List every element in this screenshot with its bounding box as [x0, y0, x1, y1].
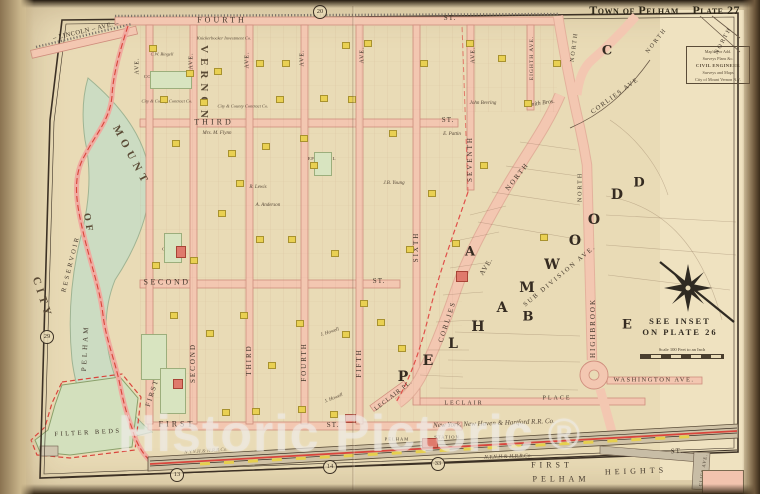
- label-pelham-station: PELHAM: [385, 436, 410, 441]
- map-geometry: [0, 0, 760, 494]
- building-footprint: [228, 150, 236, 157]
- building-footprint: [218, 210, 226, 217]
- building-footprint: [149, 45, 157, 52]
- building-footprint: [200, 99, 208, 106]
- letter-l: L: [448, 337, 458, 353]
- building-footprint: [310, 162, 318, 169]
- building-footprint: [282, 60, 290, 67]
- brick-building-footprint: [173, 379, 183, 389]
- owner-1: Knickerbocker Investment Co.: [197, 35, 252, 40]
- map-title-plate: Plate 27: [692, 3, 740, 17]
- building-footprint: [428, 190, 436, 197]
- surveyor-line: Surveys Plans &c.: [687, 56, 749, 63]
- building-footprint: [406, 246, 414, 253]
- building-footprint: [186, 70, 194, 77]
- label-highbrook: HIGHBROOK: [590, 298, 598, 358]
- label-ave-3: AVE.: [245, 51, 252, 68]
- building-footprint: [348, 96, 356, 103]
- building-footprint: [377, 319, 385, 326]
- building-footprint: [553, 60, 561, 67]
- label-second-st-suffix: ST.: [373, 278, 385, 286]
- building-footprint: [296, 320, 304, 327]
- building-footprint: [214, 68, 222, 75]
- owner-9: R. Lewis: [249, 185, 266, 191]
- inset-note: SEE INSET ON PLATE 26: [640, 316, 720, 337]
- label-highbrook-north: NORTH: [578, 172, 585, 202]
- label-third-st-suffix: ST.: [442, 117, 454, 125]
- label-st-bottomright: ST.: [671, 448, 684, 456]
- brick-building-footprint: [422, 438, 438, 448]
- label-first-st: FIRST: [159, 421, 196, 430]
- section-a: A: [465, 246, 475, 261]
- building-footprint: [342, 42, 350, 49]
- building-footprint: [276, 96, 284, 103]
- letter-o2: O: [588, 213, 600, 229]
- building-footprint: [236, 180, 244, 187]
- building-footprint: [256, 60, 264, 67]
- label-second-ave: SECOND: [190, 343, 198, 383]
- letter-w: W: [544, 258, 560, 274]
- building-footprint: [222, 409, 230, 416]
- building-footprint: [206, 330, 214, 337]
- building-footprint: [466, 40, 474, 47]
- scale-bar: [640, 354, 724, 359]
- surveyor-line: CIVIL ENGINEER: [687, 62, 749, 69]
- label-leclair-place: PLACE: [542, 396, 571, 403]
- section-e: E: [622, 319, 632, 334]
- label-fourth-st: FOURTH: [197, 17, 247, 26]
- label-ave-7: AVE.: [471, 46, 478, 63]
- scale-note: Scale 100 Feet to an Inch: [640, 347, 724, 359]
- surveyor-line: City of Mount Vernon N.Y.: [687, 77, 749, 84]
- building-footprint: [342, 331, 350, 338]
- brick-building-footprint: [176, 246, 186, 258]
- building-footprint: [331, 250, 339, 257]
- owner-11: E. Pattin: [443, 132, 461, 138]
- building-footprint: [524, 100, 532, 107]
- building-footprint: [256, 236, 264, 243]
- scale-text: Scale 100 Feet to an Inch: [640, 347, 724, 352]
- label-eighth-ave: EIGHTH AVE.: [529, 36, 535, 81]
- building-footprint: [268, 362, 276, 369]
- owner-12: C.W. Bingell: [151, 51, 174, 56]
- building-footprint: [420, 60, 428, 67]
- plate-circle-20: 20: [313, 5, 327, 19]
- building-footprint: [452, 240, 460, 247]
- owner-3: City & County Contract Co.: [218, 103, 269, 108]
- owner-6: J.B. Young: [383, 181, 404, 187]
- map-title-town: Town of Pelham: [589, 3, 679, 17]
- letter-h: H: [471, 320, 484, 336]
- plate-circle-14: 14: [323, 460, 337, 474]
- letter-o1: O: [569, 234, 581, 250]
- label-leclair: LECLAIR: [444, 401, 483, 408]
- section-d: D: [633, 177, 644, 192]
- label-second-st: SECOND: [143, 279, 190, 288]
- building-footprint: [330, 411, 338, 418]
- building-footprint: [190, 257, 198, 264]
- label-pelham-station-2: STATION: [434, 434, 459, 439]
- plate-circle-13: 13: [170, 468, 184, 482]
- map-title: Town of Pelham Plate 27: [556, 3, 740, 18]
- building-footprint: [170, 312, 178, 319]
- surveyor-line: Surveys and Maps: [687, 70, 749, 77]
- building-footprint: [540, 234, 548, 241]
- building-footprint: [172, 140, 180, 147]
- label-ave-5: AVE.: [360, 46, 367, 63]
- section-b: B: [523, 311, 534, 326]
- adjacent-plate-corner: [702, 470, 744, 494]
- inset-note-line2: ON PLATE 26: [640, 327, 720, 338]
- building-footprint: [480, 162, 488, 169]
- building-footprint: [389, 130, 397, 137]
- label-first-st-suffix: ST.: [327, 422, 339, 430]
- building-footprint: [252, 408, 260, 415]
- building-footprint: [360, 300, 368, 307]
- owner-10: A. Anderson: [256, 203, 281, 209]
- label-vernon: VERNON: [198, 45, 210, 123]
- building-footprint: [498, 55, 506, 62]
- brick-building-footprint: [456, 271, 468, 282]
- building-footprint: [152, 262, 160, 269]
- label-fifth-ave: FIFTH: [356, 348, 364, 377]
- church-lot: [160, 368, 186, 414]
- building-footprint: [262, 143, 270, 150]
- building-footprint: [240, 312, 248, 319]
- label-ave-1: AVE.: [135, 57, 142, 74]
- label-fourth-st-suffix: ST.: [444, 15, 456, 23]
- letter-e: E: [423, 354, 434, 370]
- building-footprint: [320, 95, 328, 102]
- building-footprint: [160, 96, 168, 103]
- section-c: C: [602, 45, 612, 60]
- letter-p: P: [398, 370, 409, 386]
- building-footprint: [364, 40, 372, 47]
- inset-note-line1: SEE INSET: [640, 316, 720, 327]
- label-sixth-ave: SIXTH: [413, 232, 421, 263]
- building-footprint: [300, 135, 308, 142]
- building-footprint: [398, 345, 406, 352]
- building-footprint: [288, 236, 296, 243]
- owner-5: John Bevring: [470, 101, 497, 107]
- plate-circle-29: 29: [40, 330, 54, 344]
- compass-rose: [660, 262, 734, 322]
- label-third-ave: THIRD: [246, 344, 254, 375]
- label-ave-4: AVE.: [300, 49, 307, 66]
- label-first-bottom: FIRST: [531, 462, 573, 471]
- label-fourth-ave: FOURTH: [301, 342, 309, 382]
- label-washington-ave: WASHINGTON AVE.: [613, 376, 694, 383]
- brick-building-footprint: [345, 414, 356, 423]
- letter-d: D: [611, 188, 623, 204]
- scanned-atlas-map-photo: Town of Pelham Plate 27 Map'd For Add. S…: [0, 0, 760, 494]
- building-footprint: [298, 406, 306, 413]
- label-seventh-ave: SEVENTH: [467, 136, 475, 182]
- label-ave-2: AVE.: [189, 52, 196, 69]
- label-pelham-heights-1: PELHAM: [533, 476, 590, 485]
- letter-a: A: [497, 301, 508, 317]
- owner-4: Mrs. M. Flynn: [203, 131, 232, 137]
- plate-circle-33: 33: [431, 457, 445, 471]
